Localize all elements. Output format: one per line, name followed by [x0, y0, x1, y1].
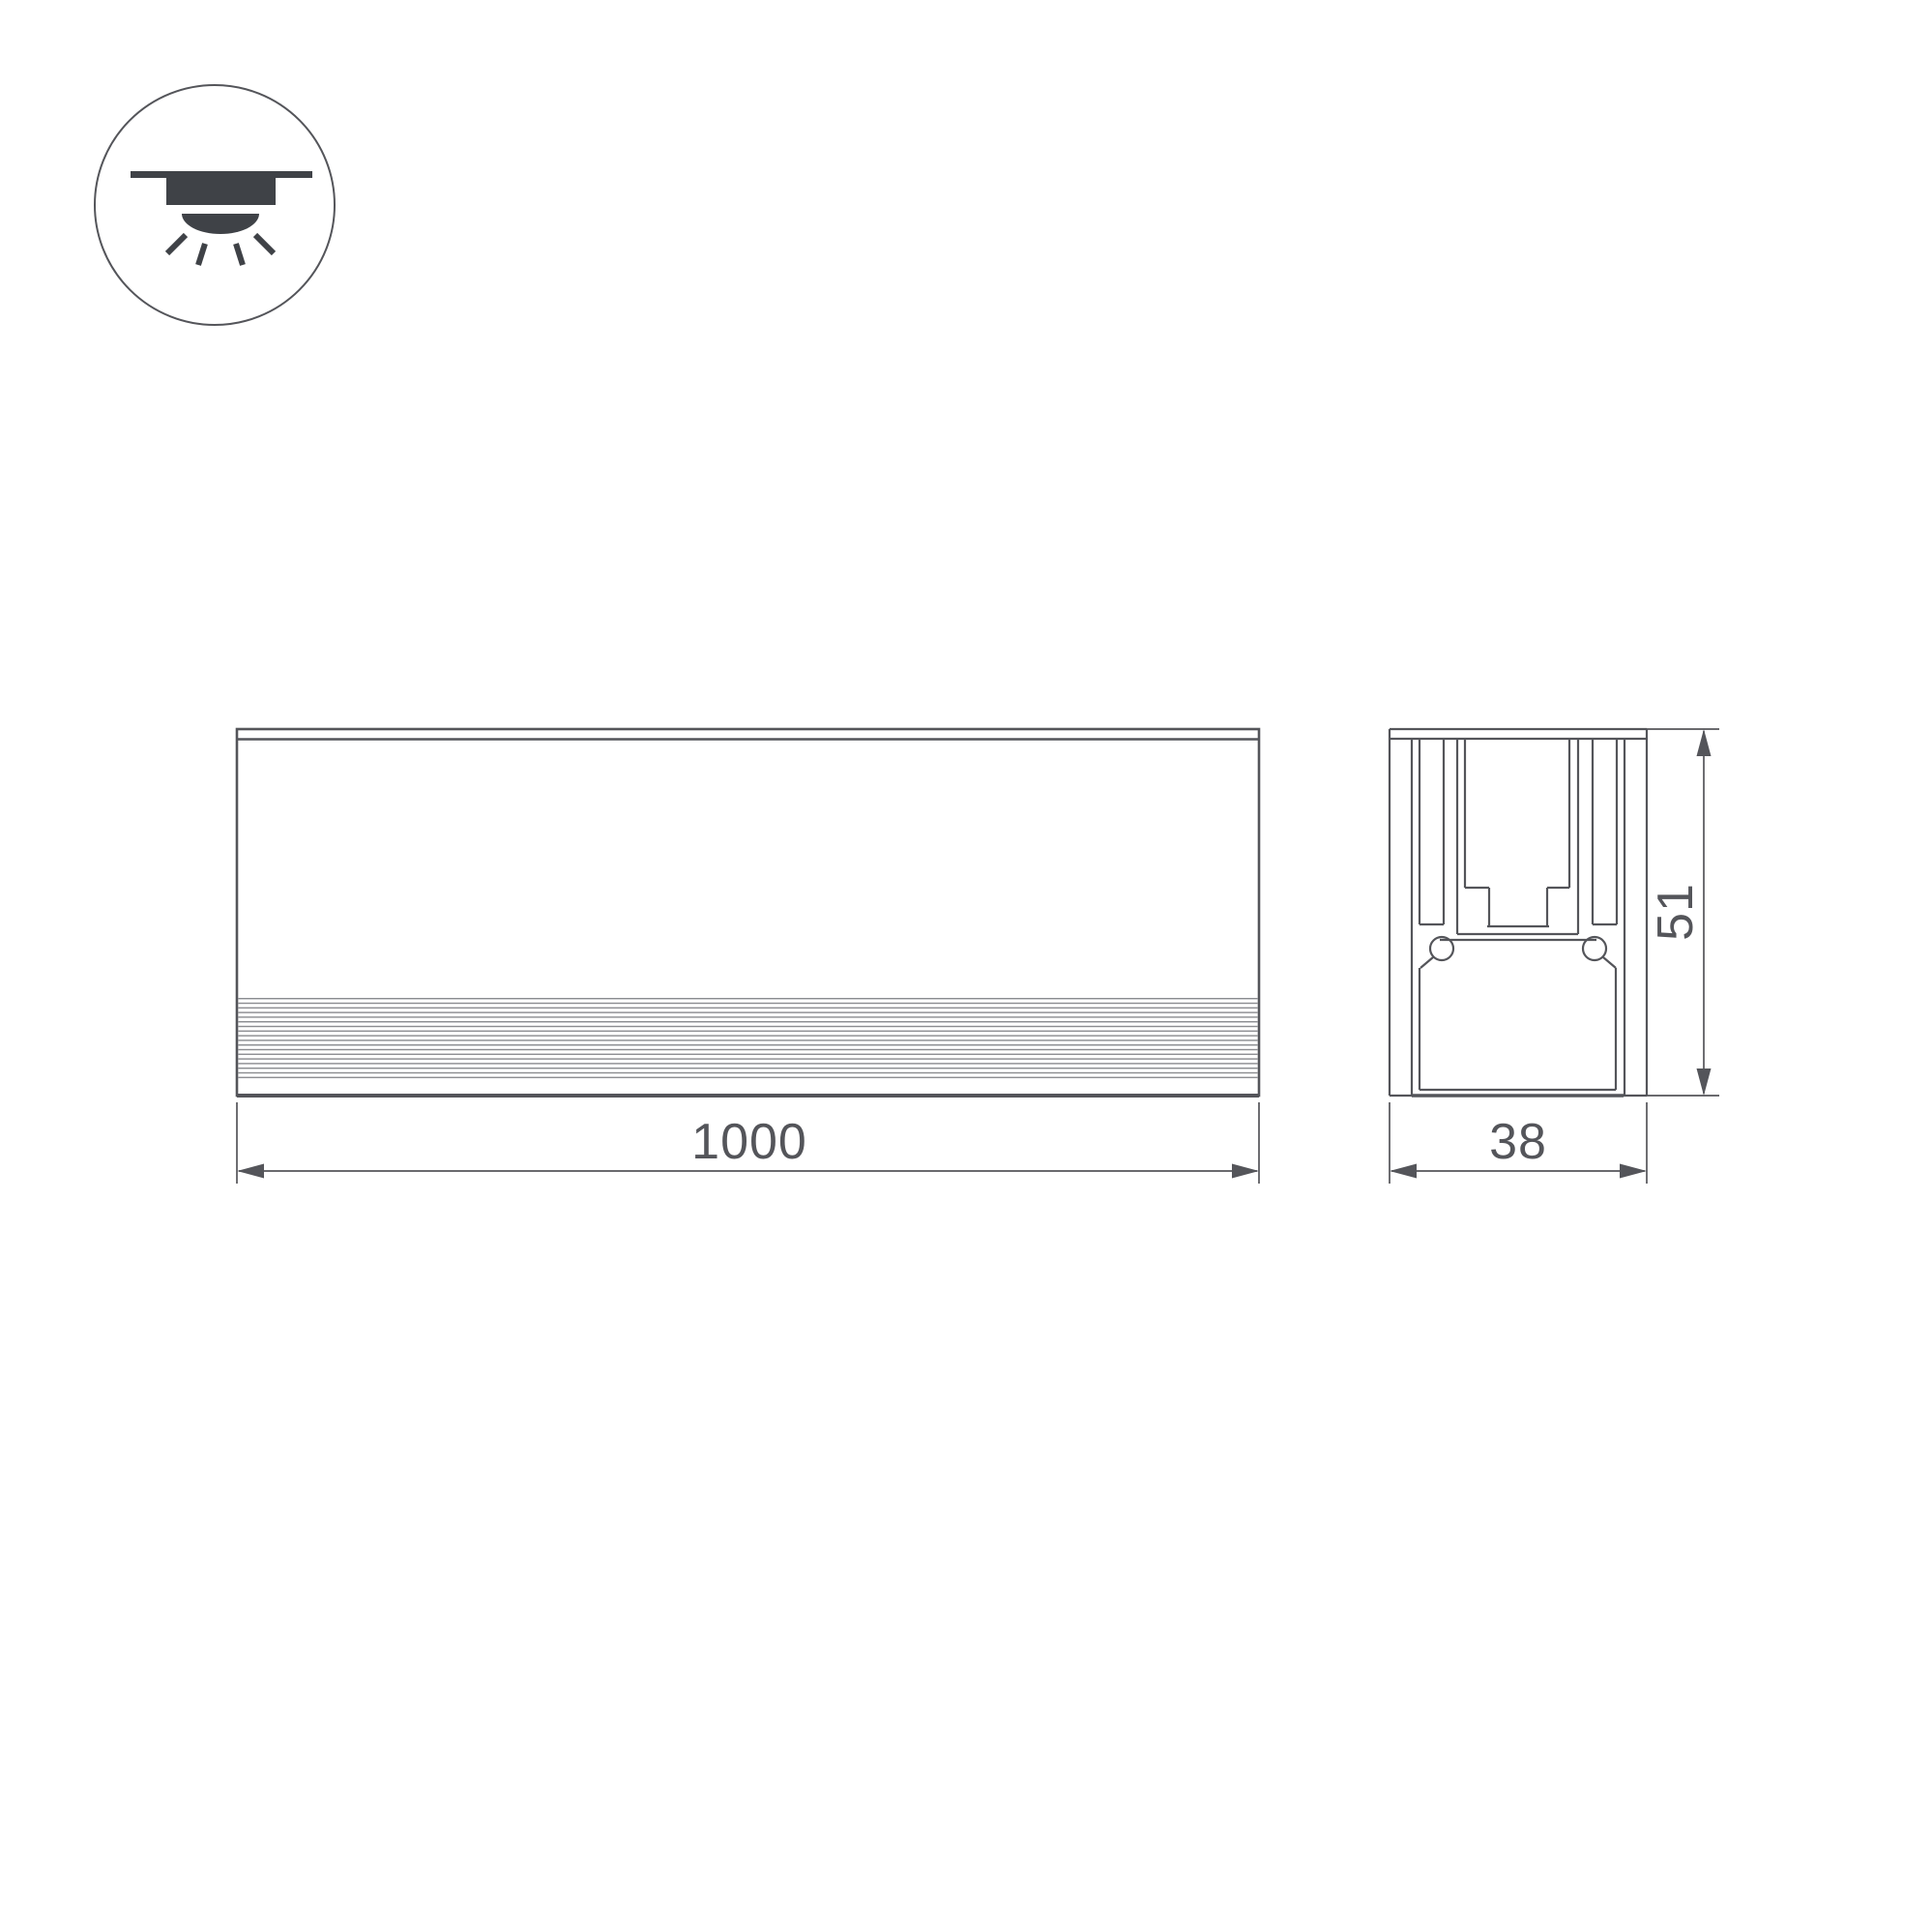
front-view-ribbed-diffuser [239, 995, 1258, 1081]
arrowhead-right [1232, 1164, 1259, 1179]
dimension-height-label: 51 [1648, 883, 1704, 941]
arrowhead-top [1697, 729, 1712, 756]
arrowhead-left [1390, 1164, 1417, 1179]
dimension-height: 51 [1627, 729, 1719, 1096]
icon-ray-2 [198, 244, 205, 265]
icon-lamp-dome [182, 214, 259, 234]
recessed-downlight-icon [95, 85, 335, 325]
icon-light-rays [167, 235, 274, 265]
icon-ray-3 [236, 244, 243, 265]
icon-ray-4 [255, 235, 274, 253]
dimension-width: 38 [1390, 1102, 1647, 1184]
dimension-length-label: 1000 [691, 1114, 807, 1170]
cross-section-view [1390, 729, 1647, 1096]
dimension-width-label: 38 [1489, 1114, 1547, 1170]
icon-ceiling-bar [131, 171, 312, 178]
technical-drawing-sheet: 1000 38 51 [0, 0, 1932, 1932]
dimension-length: 1000 [237, 1102, 1259, 1184]
arrowhead-right [1620, 1164, 1647, 1179]
front-view [237, 729, 1259, 1096]
icon-ray-1 [167, 235, 186, 253]
drawing-svg: 1000 38 51 [0, 0, 1932, 1932]
arrowhead-left [237, 1164, 264, 1179]
icon-recessed-housing [166, 178, 276, 205]
section-profile-walls [1390, 729, 1647, 1096]
arrowhead-bottom [1697, 1068, 1712, 1096]
